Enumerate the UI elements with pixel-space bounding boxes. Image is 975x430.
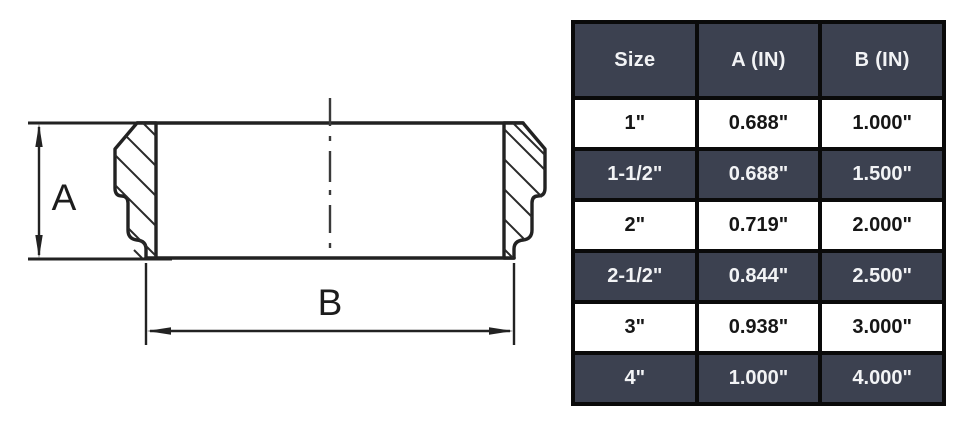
- cell-size: 1": [573, 98, 697, 149]
- cell-a: 0.688": [697, 98, 821, 149]
- dim-a-arrow-down: [35, 235, 42, 258]
- table-row: 4" 1.000" 4.000": [573, 353, 944, 404]
- dimensions-table: Size A (IN) B (IN) 1" 0.688" 1.000" 1-1/…: [571, 20, 946, 406]
- column-header-a: A (IN): [697, 22, 821, 98]
- cell-b: 3.000": [820, 302, 944, 353]
- cell-size: 3": [573, 302, 697, 353]
- technical-drawing: A B: [0, 0, 560, 430]
- dim-b-label: B: [318, 282, 343, 323]
- table-row: 3" 0.938" 3.000": [573, 302, 944, 353]
- cell-a: 0.688": [697, 149, 821, 200]
- column-header-size: Size: [573, 22, 697, 98]
- right-wall-section: [504, 123, 545, 258]
- cell-size: 2-1/2": [573, 251, 697, 302]
- dim-a-label: A: [52, 177, 77, 218]
- ferrule-spec-panel: A B Size A (IN) B (IN) 1" 0.688" 1.000": [0, 0, 975, 430]
- cell-a: 0.719": [697, 200, 821, 251]
- cell-b: 4.000": [820, 353, 944, 404]
- table-row: 2-1/2" 0.844" 2.500": [573, 251, 944, 302]
- column-header-b: B (IN): [820, 22, 944, 98]
- cell-a: 0.938": [697, 302, 821, 353]
- cell-a: 1.000": [697, 353, 821, 404]
- cell-size: 2": [573, 200, 697, 251]
- dim-b-arrow-right: [489, 327, 513, 335]
- table-row: 1" 0.688" 1.000": [573, 98, 944, 149]
- dim-a-arrow-up: [35, 124, 42, 147]
- cell-b: 2.000": [820, 200, 944, 251]
- cell-size: 1-1/2": [573, 149, 697, 200]
- cell-a: 0.844": [697, 251, 821, 302]
- cell-size: 4": [573, 353, 697, 404]
- dimension-b: B: [146, 263, 514, 345]
- dim-b-arrow-left: [147, 327, 171, 335]
- table-row: 1-1/2" 0.688" 1.500": [573, 149, 944, 200]
- table-row: 2" 0.719" 2.000": [573, 200, 944, 251]
- cell-b: 1.000": [820, 98, 944, 149]
- cell-b: 1.500": [820, 149, 944, 200]
- cell-b: 2.500": [820, 251, 944, 302]
- header-row: Size A (IN) B (IN): [573, 22, 944, 98]
